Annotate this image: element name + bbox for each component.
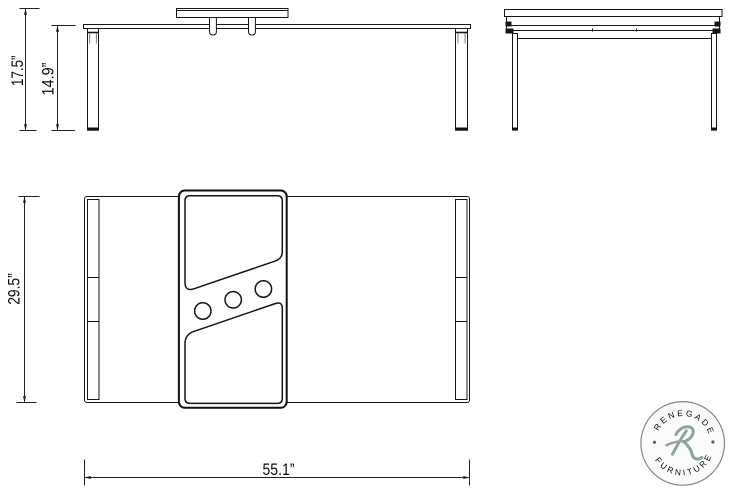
- svg-text:17.5”: 17.5”: [9, 56, 27, 87]
- svg-text:29.5”: 29.5”: [6, 273, 24, 305]
- svg-text:14.9”: 14.9”: [40, 63, 58, 96]
- svg-text:55.1”: 55.1”: [263, 461, 295, 479]
